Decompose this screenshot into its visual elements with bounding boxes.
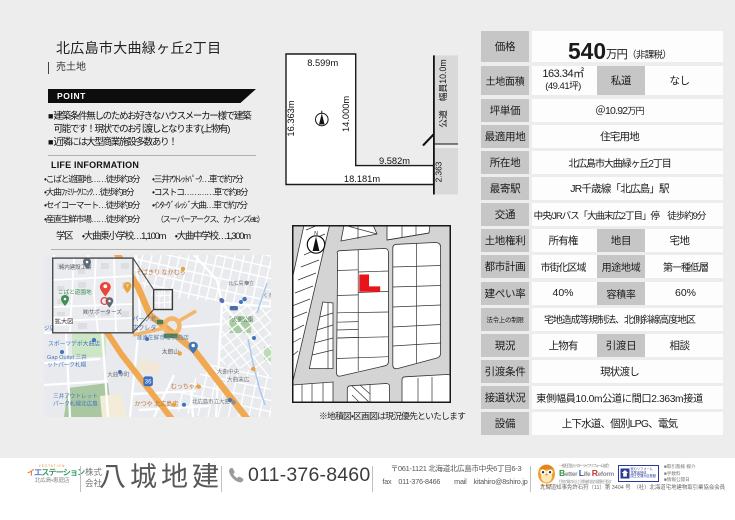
svg-text:そばきり なかむら: そばきり なかむら [136, 269, 186, 277]
svg-text:N: N [314, 231, 318, 237]
svg-text:8.599m: 8.599m [307, 58, 338, 68]
svg-text:むっちゃん: むっちゃん [171, 384, 201, 391]
svg-text:36: 36 [145, 380, 152, 386]
svg-text:大曲中央: 大曲中央 [217, 368, 240, 376]
svg-text:パーク札幌北広島: パーク札幌北広島 [53, 400, 98, 408]
svg-text:9.582m: 9.582m [379, 156, 410, 166]
svg-text:大曲末広: 大曲末広 [227, 376, 250, 384]
svg-text:くる: くる [263, 292, 271, 299]
svg-text:パーク北: パーク北 [132, 315, 156, 323]
svg-text:〒: 〒 [125, 284, 129, 289]
svg-text:太郎山: 太郎山 [162, 348, 180, 356]
svg-text:16.363m: 16.363m [286, 100, 296, 136]
svg-text:かつや 北広島店: かつや 北広島店 [135, 400, 179, 408]
svg-text:三井アウトレット: 三井アウトレット [53, 392, 98, 400]
svg-text:2.363: 2.363 [434, 161, 444, 182]
svg-text:18.181m: 18.181m [344, 174, 380, 184]
svg-text:拡大図: 拡大図 [55, 318, 74, 326]
svg-text:大曲公園: 大曲公園 [232, 316, 254, 324]
svg-text:こばと遊園地: こばと遊園地 [58, 288, 92, 296]
svg-text:産直生鮮市場 大曲店: 産直生鮮市場 大曲店 [137, 334, 189, 342]
svg-text:14.000m: 14.000m [341, 96, 351, 132]
svg-text:ットパーク札幌: ットパーク札幌 [47, 361, 87, 369]
svg-text:北広島市立: 北広島市立 [228, 279, 254, 287]
svg-text:㈱サポーターズ: ㈱サポーターズ [83, 308, 122, 316]
svg-text:Gap Outlet 三井: Gap Outlet 三井 [47, 353, 87, 361]
svg-text:公道 幅員10.0m: 公道 幅員10.0m [437, 59, 448, 127]
svg-text:広クレタ: 広クレタ [132, 324, 156, 332]
